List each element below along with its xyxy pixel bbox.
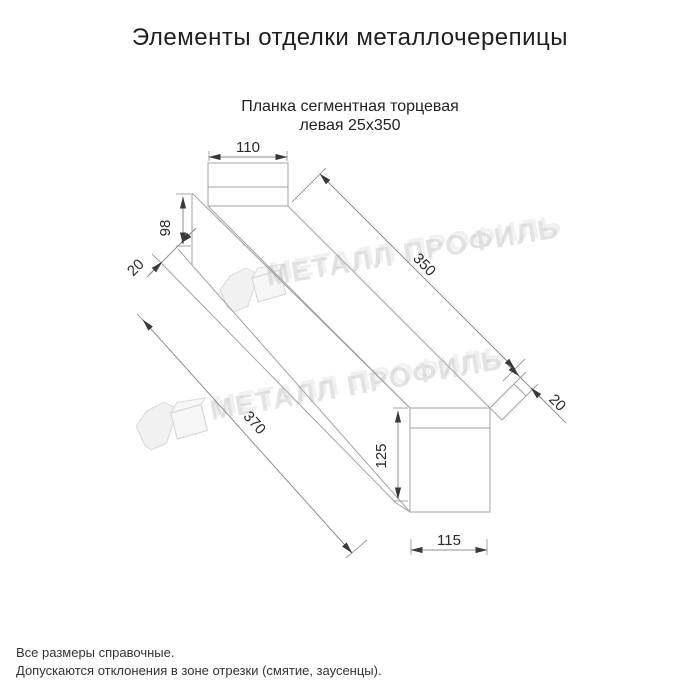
watermark-row-1: МЕТАЛЛ ПРОФИЛЬ МЕТАЛЛ ПРОФИЛЬ bbox=[220, 208, 565, 312]
dimension-top-width: 110 bbox=[209, 139, 287, 161]
part-outline bbox=[166, 163, 526, 512]
dimension-end-width: 115 bbox=[411, 532, 487, 555]
far-end-hem-flap bbox=[490, 384, 526, 420]
dim-label-110: 110 bbox=[236, 139, 260, 156]
dim-label-20-right: 20 bbox=[545, 391, 569, 415]
dim-label-20-left: 20 bbox=[124, 256, 148, 280]
footer-notes: Все размеры справочные. Допускаются откл… bbox=[16, 644, 382, 680]
metall-profil-logo bbox=[136, 398, 207, 450]
dim-label-98: 98 bbox=[157, 220, 174, 237]
dim-label-125: 125 bbox=[373, 443, 390, 468]
page: Элементы отделки металлочерепицы Планка … bbox=[0, 0, 700, 700]
dimension-end-height: 125 bbox=[373, 408, 408, 501]
watermark-row-2: МЕТАЛЛ ПРОФИЛЬ МЕТАЛЛ ПРОФИЛЬ bbox=[136, 340, 508, 450]
far-end-profile bbox=[410, 408, 490, 512]
dimension-length-bottom: 370 bbox=[137, 314, 367, 558]
note-line-2: Допускаются отклонения в зоне отрезки (с… bbox=[16, 662, 382, 680]
note-line-1: Все размеры справочные. bbox=[16, 644, 382, 662]
dimension-hem-right: 20 bbox=[508, 365, 569, 423]
near-end-profile bbox=[208, 163, 288, 206]
dim-label-115: 115 bbox=[437, 532, 461, 549]
technical-drawing: МЕТАЛЛ ПРОФИЛЬ МЕТАЛЛ ПРОФИЛЬ МЕТАЛЛ ПРО… bbox=[0, 0, 700, 700]
